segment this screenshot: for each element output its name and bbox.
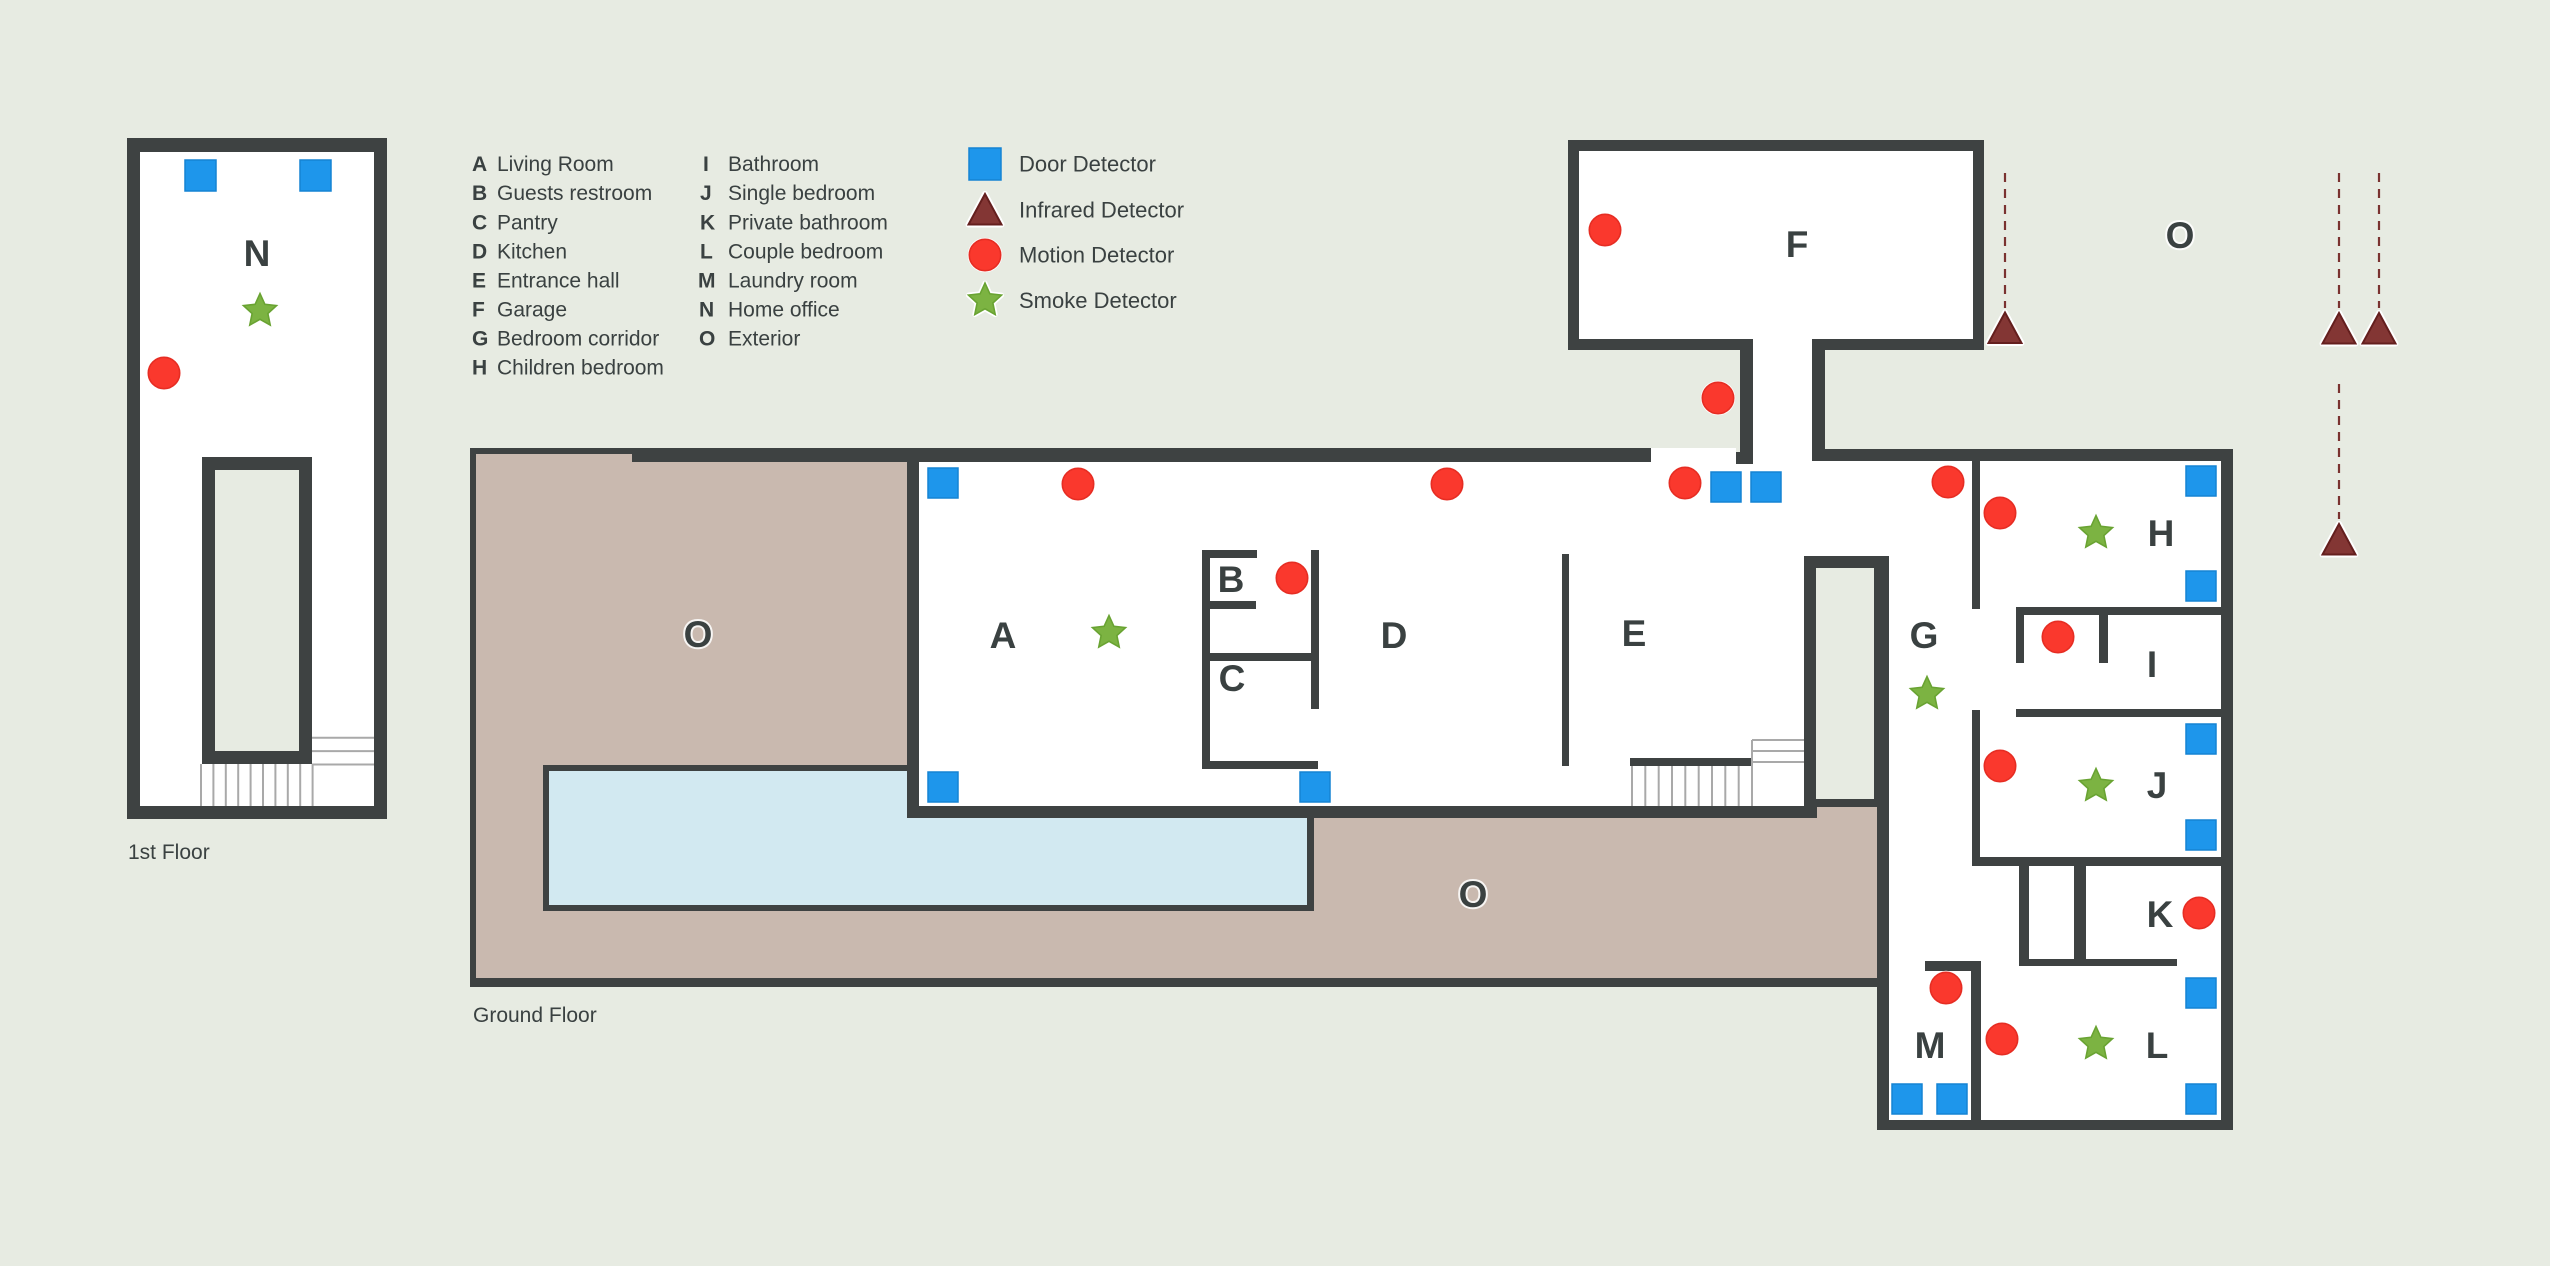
svg-text:Private bathroom: Private bathroom — [728, 211, 888, 234]
svg-text:Garage: Garage — [497, 298, 567, 321]
svg-text:D: D — [472, 240, 487, 263]
svg-text:M: M — [698, 270, 716, 293]
svg-text:H: H — [2148, 513, 2175, 554]
svg-text:Bathroom: Bathroom — [728, 153, 819, 176]
svg-text:Laundry room: Laundry room — [728, 270, 858, 293]
svg-text:E: E — [472, 270, 486, 293]
svg-text:M: M — [1915, 1025, 1946, 1066]
svg-text:G: G — [472, 328, 488, 351]
svg-text:Kitchen: Kitchen — [497, 240, 567, 263]
svg-text:Exterior: Exterior — [728, 328, 800, 351]
svg-text:C: C — [1219, 658, 1246, 699]
svg-text:Smoke Detector: Smoke Detector — [1019, 288, 1177, 313]
svg-text:Bedroom corridor: Bedroom corridor — [497, 328, 659, 351]
svg-text:Living Room: Living Room — [497, 153, 614, 176]
svg-text:D: D — [1381, 615, 1408, 656]
svg-text:J: J — [2147, 765, 2168, 806]
svg-text:Home office: Home office — [728, 298, 840, 321]
svg-text:E: E — [1622, 613, 1647, 654]
svg-text:O: O — [1459, 874, 1488, 915]
svg-text:I: I — [2147, 644, 2157, 685]
svg-text:K: K — [700, 211, 715, 234]
svg-text:Infrared Detector: Infrared Detector — [1019, 198, 1184, 223]
svg-text:1st Floor: 1st Floor — [128, 841, 210, 864]
svg-text:F: F — [1786, 224, 1809, 265]
svg-text:Single bedroom: Single bedroom — [728, 182, 875, 205]
svg-text:L: L — [700, 240, 713, 263]
svg-text:N: N — [244, 233, 271, 274]
svg-text:C: C — [472, 211, 487, 234]
svg-text:Couple bedroom: Couple bedroom — [728, 240, 883, 263]
svg-text:Motion Detector: Motion Detector — [1019, 243, 1174, 268]
svg-text:L: L — [2146, 1025, 2169, 1066]
svg-text:N: N — [699, 298, 714, 321]
svg-text:J: J — [700, 182, 712, 205]
svg-text:Entrance hall: Entrance hall — [497, 270, 620, 293]
svg-text:A: A — [472, 153, 487, 176]
svg-text:A: A — [990, 615, 1017, 656]
svg-text:Children bedroom: Children bedroom — [497, 357, 664, 380]
svg-text:B: B — [1218, 559, 1245, 600]
svg-text:O: O — [699, 328, 715, 351]
svg-text:K: K — [2147, 894, 2174, 935]
svg-text:B: B — [472, 182, 487, 205]
svg-text:Ground Floor: Ground Floor — [473, 1004, 597, 1027]
svg-text:I: I — [703, 153, 709, 176]
svg-text:Pantry: Pantry — [497, 211, 558, 234]
svg-text:O: O — [2166, 215, 2195, 256]
svg-text:G: G — [1910, 615, 1939, 656]
svg-text:H: H — [472, 357, 487, 380]
svg-text:Door Detector: Door Detector — [1019, 152, 1156, 177]
svg-text:O: O — [684, 614, 713, 655]
svg-text:Guests restroom: Guests restroom — [497, 182, 652, 205]
svg-text:F: F — [472, 298, 485, 321]
